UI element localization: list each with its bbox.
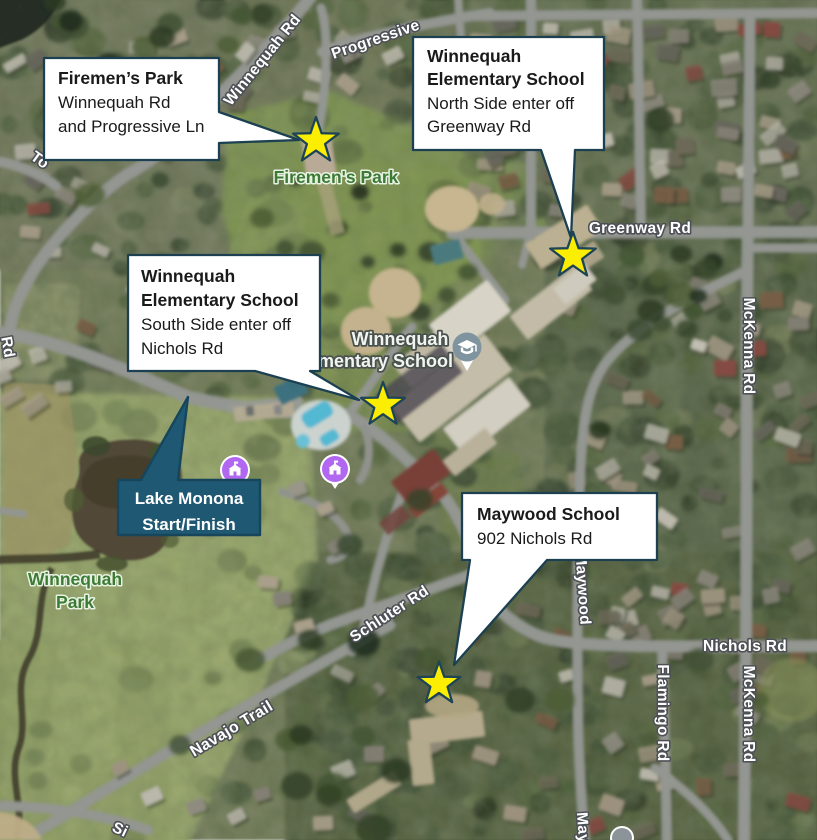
svg-text:McKenna Rd: McKenna Rd bbox=[740, 298, 757, 395]
svg-text:McKenna Rd: McKenna Rd bbox=[740, 666, 757, 763]
svg-text:South Side enter off: South Side enter off bbox=[141, 315, 291, 334]
svg-text:Rd: Rd bbox=[0, 335, 18, 359]
svg-text:Winnequah: Winnequah bbox=[141, 266, 235, 286]
svg-text:Winnequah: Winnequah bbox=[427, 46, 521, 66]
svg-text:902 Nichols Rd: 902 Nichols Rd bbox=[477, 529, 592, 548]
svg-text:Firemen’s Park: Firemen’s Park bbox=[58, 68, 183, 88]
svg-text:Greenway Rd: Greenway Rd bbox=[427, 117, 531, 136]
svg-text:Park: Park bbox=[56, 592, 94, 612]
svg-text:May: May bbox=[573, 812, 592, 840]
svg-text:Lake Monona: Lake Monona bbox=[135, 489, 244, 508]
svg-text:and Progressive Ln: and Progressive Ln bbox=[58, 117, 204, 136]
svg-text:North Side enter off: North Side enter off bbox=[427, 94, 574, 113]
svg-text:Flamingo Rd: Flamingo Rd bbox=[654, 664, 671, 761]
svg-text:Elementary School: Elementary School bbox=[427, 69, 585, 89]
svg-text:Elementary School: Elementary School bbox=[141, 290, 299, 310]
svg-text:Winnequah: Winnequah bbox=[28, 569, 122, 589]
svg-text:Greenway Rd: Greenway Rd bbox=[589, 220, 691, 237]
svg-text:Nichols Rd: Nichols Rd bbox=[703, 638, 787, 655]
svg-text:Firemen's Park: Firemen's Park bbox=[274, 167, 399, 187]
svg-text:Winnequah Rd: Winnequah Rd bbox=[58, 93, 170, 112]
svg-text:Maywood School: Maywood School bbox=[477, 504, 620, 524]
svg-text:Winnequah: Winnequah bbox=[352, 329, 449, 349]
svg-text:Start/Finish: Start/Finish bbox=[142, 515, 236, 534]
svg-text:Nichols Rd: Nichols Rd bbox=[141, 339, 223, 358]
